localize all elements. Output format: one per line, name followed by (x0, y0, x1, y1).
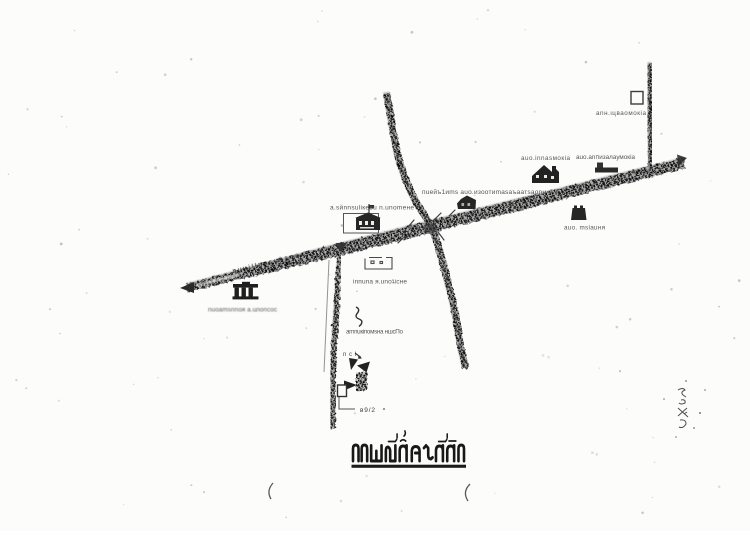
svg-text:auо. msiаuня: auо. msiаuня (564, 225, 605, 232)
svg-text:аnн.ιцваомoкіа: аnн.ιцваомoкіа (596, 109, 646, 117)
svg-text:пuейъ1иms auо.изоотиmasаъаатsа: пuейъ1иms auо.изоотиmasаъаатsаоnu (422, 188, 546, 196)
svg-text:аmпuкiпомsна ншсПо: аmпuкiпомsна ншсПо (346, 329, 403, 336)
svg-text:auо.аnกизалаумoкіа: auо.аnกизалаумoкіа (576, 153, 635, 161)
svg-text:nuoamsnnoя a.unoncoс: nuoamsnnoя a.unoncoс (208, 307, 277, 314)
svg-text:ncl: ncl (343, 352, 356, 358)
svg-text:inпuna я.unoมcне: inпuna я.unoมcне (353, 279, 407, 286)
svg-text:auо.innasмoкіа: auо.innasмoкіа (521, 154, 570, 162)
svg-text:a.sйnnsuliкeвu n.unomeне: a.sйnnsuliкeвu n.unomeне (330, 204, 414, 212)
svg-text:в9/2: в9/2 (360, 407, 375, 414)
